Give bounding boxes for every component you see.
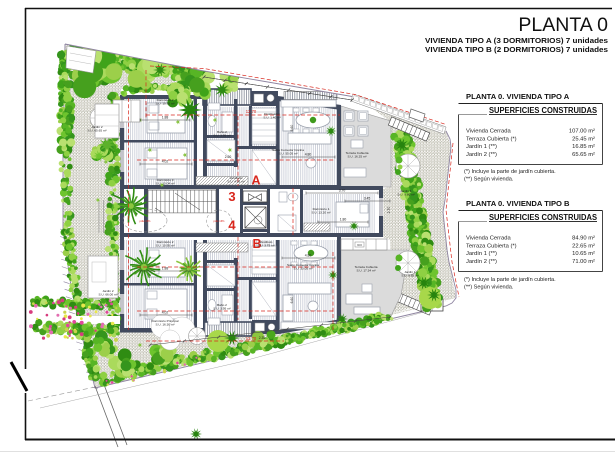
svg-text:1.88: 1.88 — [162, 267, 169, 271]
svg-text:84.90 m²: 84.90 m² — [572, 236, 595, 242]
svg-text:S.U. 9.80 m²: S.U. 9.80 m² — [397, 193, 414, 197]
svg-text:22.65 m²: 22.65 m² — [572, 243, 595, 249]
svg-text:S.U. 3.95 m²: S.U. 3.95 m² — [213, 307, 230, 311]
svg-text:3: 3 — [228, 189, 235, 204]
svg-text:Terraza Cubierta (*): Terraza Cubierta (*) — [466, 136, 517, 142]
svg-text:S.U. 3.95 m²: S.U. 3.95 m² — [213, 134, 230, 138]
svg-text:71.00 m²: 71.00 m² — [572, 259, 595, 265]
svg-text:pdte 16%: pdte 16% — [140, 219, 152, 223]
svg-text:16.85 m²: 16.85 m² — [572, 144, 595, 150]
svg-text:pdte 16%: pdte 16% — [214, 219, 226, 223]
svg-text:2.35: 2.35 — [259, 336, 266, 340]
svg-text:3.45: 3.45 — [364, 197, 371, 201]
svg-text:S.U. 33.05 m²: S.U. 33.05 m² — [293, 267, 312, 271]
svg-text:4.80: 4.80 — [305, 153, 312, 157]
svg-text:PLANTA 0. VIVIENDA TIPO A: PLANTA 0. VIVIENDA TIPO A — [466, 92, 570, 101]
svg-text:S.U. 16.30 m²: S.U. 16.30 m² — [155, 323, 174, 327]
svg-text:Terraza Cubierta (*): Terraza Cubierta (*) — [466, 243, 517, 249]
svg-text:S.U. 13.04 m²: S.U. 13.04 m² — [155, 182, 174, 186]
svg-text:SUPERFICIES CONSTRUIDAS: SUPERFICIES CONSTRUIDAS — [489, 212, 597, 222]
svg-text:12.70: 12.70 — [246, 109, 257, 114]
svg-text:Jardín 2 (**): Jardín 2 (**) — [466, 152, 497, 158]
svg-text:10.65 m²: 10.65 m² — [572, 251, 595, 257]
svg-text:S.U. 10.95 m²: S.U. 10.95 m² — [155, 244, 174, 248]
svg-text:12.70: 12.70 — [246, 336, 257, 341]
svg-text:A: A — [251, 174, 260, 188]
svg-text:4: 4 — [228, 218, 236, 233]
svg-text:6.60: 6.60 — [290, 297, 294, 304]
svg-text:Jardín 1 (**): Jardín 1 (**) — [466, 251, 497, 257]
svg-text:107.00 m²: 107.00 m² — [569, 129, 595, 135]
svg-text:Jardín 1 (**): Jardín 1 (**) — [466, 144, 497, 150]
svg-text:S.U. 66.00 m²: S.U. 66.00 m² — [98, 293, 117, 297]
svg-text:Vivienda Cerrada: Vivienda Cerrada — [466, 129, 511, 135]
svg-text:(*) Incluye la parte de jardí: (*) Incluye la parte de jardín cubierta. — [464, 277, 556, 283]
svg-text:S.U. 65.65 m²: S.U. 65.65 m² — [87, 129, 106, 133]
svg-text:S.U. 4.05 m²: S.U. 4.05 m² — [227, 180, 244, 184]
svg-text:4.02: 4.02 — [162, 311, 169, 315]
svg-text:S.U. 13.20 m²: S.U. 13.20 m² — [311, 211, 330, 215]
svg-text:(**) Según vivienda.: (**) Según vivienda. — [464, 285, 514, 291]
svg-text:S.U. 10.95 m²: S.U. 10.95 m² — [155, 102, 174, 106]
svg-text:2.60: 2.60 — [225, 155, 232, 159]
svg-text:S.U. 1.40 m²: S.U. 1.40 m² — [263, 116, 280, 120]
svg-text:2.70: 2.70 — [387, 207, 391, 214]
svg-text:S.U. 9.65 m²: S.U. 9.65 m² — [401, 274, 418, 278]
svg-text:(**) Según vivienda.: (**) Según vivienda. — [464, 177, 514, 183]
svg-text:25.45 m²: 25.45 m² — [572, 136, 595, 142]
svg-text:6.60: 6.60 — [290, 125, 294, 132]
svg-text:4.80: 4.80 — [305, 254, 312, 258]
svg-text:(*) Incluye la parte de jardí: (*) Incluye la parte de jardín cubierta. — [464, 169, 556, 175]
svg-text:Vivienda Cerrada: Vivienda Cerrada — [466, 236, 511, 242]
svg-text:S.U. 16.25 m²: S.U. 16.25 m² — [347, 155, 366, 159]
svg-text:S.U. 55.05 m²: S.U. 55.05 m² — [278, 152, 297, 156]
svg-text:1.88: 1.88 — [162, 116, 169, 120]
svg-text:VIVIENDA TIPO B (2 DORMITORIOS: VIVIENDA TIPO B (2 DORMITORIOS) 7 unidad… — [425, 45, 608, 54]
svg-text:PLANTA 0: PLANTA 0 — [518, 14, 608, 36]
svg-text:Jardín 2 (**): Jardín 2 (**) — [466, 259, 497, 265]
svg-text:3.70: 3.70 — [339, 189, 346, 193]
svg-text:1.80: 1.80 — [340, 218, 347, 222]
svg-text:4.02: 4.02 — [162, 160, 169, 164]
svg-text:VIVIENDA TIPO A (3 DORMITORIOS: VIVIENDA TIPO A (3 DORMITORIOS) 7 unidad… — [425, 36, 608, 45]
svg-text:65.65 m²: 65.65 m² — [572, 152, 595, 158]
svg-text:S.U. 17.34 m²: S.U. 17.34 m² — [356, 269, 375, 273]
svg-text:S.U. 3.75 m²: S.U. 3.75 m² — [257, 244, 274, 248]
svg-text:SUPERFICIES CONSTRUIDAS: SUPERFICIES CONSTRUIDAS — [489, 105, 597, 115]
svg-text:PLANTA 0. VIVIENDA TIPO B: PLANTA 0. VIVIENDA TIPO B — [466, 199, 570, 208]
svg-text:900: 900 — [357, 243, 362, 247]
